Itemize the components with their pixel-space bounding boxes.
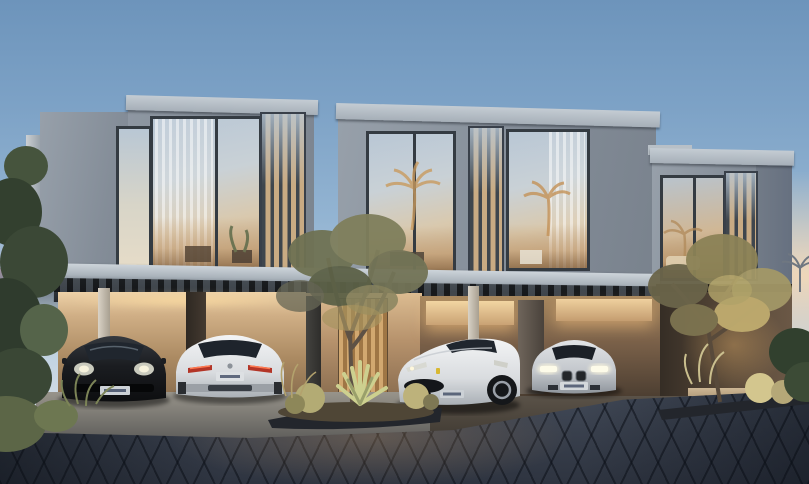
- wheel-right: [274, 382, 282, 394]
- car-white-coupe-rear: [173, 335, 287, 404]
- barrel-cactus-right-small: [423, 394, 439, 410]
- headlight-left: [540, 366, 557, 372]
- headlight-led: [410, 367, 414, 371]
- scene-overlay: [0, 0, 809, 484]
- plate-illegible-text: [220, 375, 240, 378]
- round-shrub-1: [745, 373, 775, 403]
- agave-plant: [338, 362, 386, 404]
- headlight-right: [591, 366, 608, 372]
- wheel-left: [178, 382, 186, 394]
- windshield: [84, 342, 144, 362]
- left-bush-lit-2: [34, 400, 78, 432]
- palm-reflection-left-window: [386, 162, 440, 230]
- brand-roundel: [227, 363, 232, 368]
- car-dark-sports-front: [58, 336, 170, 408]
- interior-furniture: [185, 226, 700, 270]
- center-planter-island: [268, 214, 442, 429]
- olive-tree-canopy: [276, 214, 428, 331]
- intake-right: [590, 385, 600, 390]
- car-silver-sedan-front: [526, 340, 622, 398]
- left-canopy-4: [20, 304, 68, 356]
- badge: [436, 368, 440, 374]
- barrel-cactus-small: [285, 394, 305, 414]
- architectural-render-scene: [0, 0, 809, 484]
- intake-left: [548, 385, 558, 390]
- front-wheel: [487, 375, 517, 405]
- mirror-right: [161, 358, 166, 364]
- palm-reflection-right-window: [524, 182, 591, 248]
- headlight-right-lit: [139, 366, 149, 373]
- headlight-left-lit: [79, 366, 89, 373]
- mirror-left: [62, 358, 67, 364]
- feather-grass: [685, 344, 724, 384]
- right-tree-canopy: [648, 234, 792, 336]
- kidney-grille-right: [576, 371, 586, 381]
- diffuser: [208, 385, 252, 391]
- plate-illegible-text: [564, 385, 584, 388]
- plate-illegible-text: [443, 393, 461, 396]
- kidney-grille-left: [562, 371, 572, 381]
